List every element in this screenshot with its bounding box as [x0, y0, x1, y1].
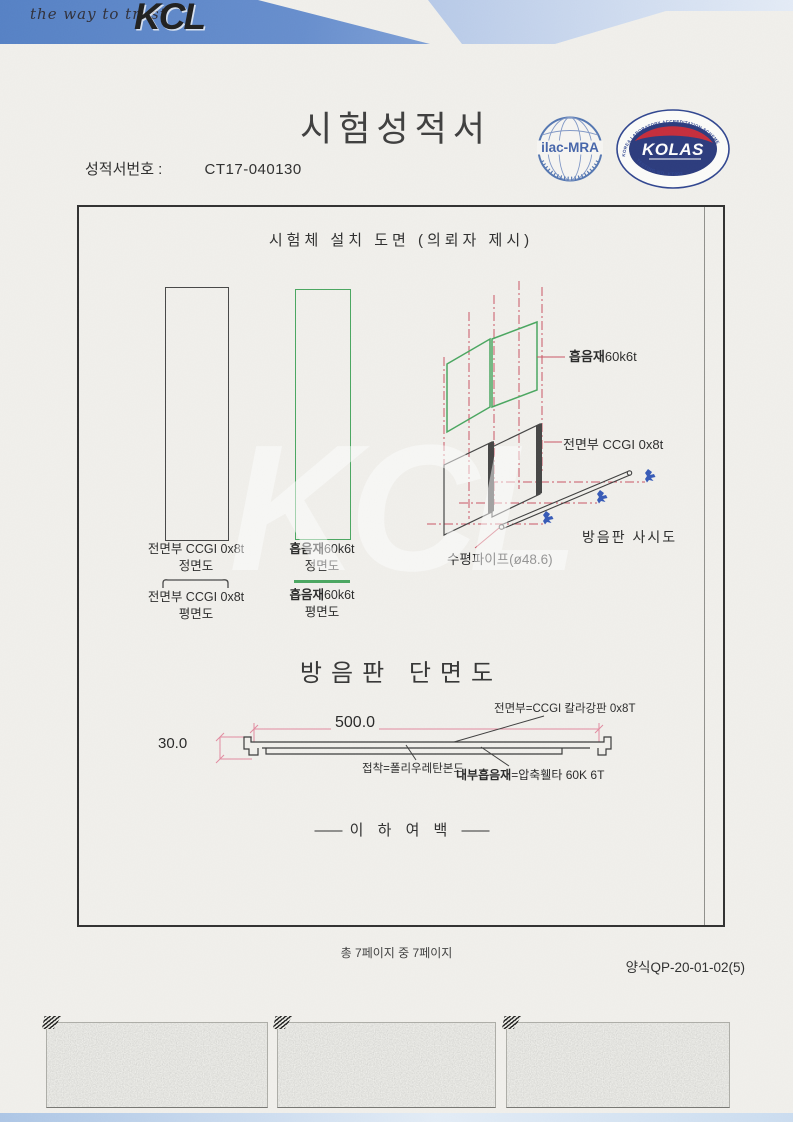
ilac-mra-logo: ilac-MRA [534, 114, 606, 184]
exploded-absorber-label: 흡음재60k6t [569, 346, 637, 365]
ilac-mra-text: ilac-MRA [541, 140, 599, 155]
plan-view-label: 평면도 [259, 604, 385, 621]
pipe-label: 수평파이프(ø48.6) [447, 548, 553, 568]
report-number-label: 성적서번호 : [85, 161, 162, 178]
iso-view-label: 방음판 사시도 [582, 527, 677, 547]
kolas-logo: KOREA LABORATORY ACCREDITATION SCHEME TE… [613, 108, 733, 190]
dimension-height: 30.0 [158, 735, 187, 752]
section-title: 방음판 단면도 [79, 653, 723, 688]
form-number: 양식QP-20-01-02(5) [626, 956, 745, 976]
end-of-content-note: ―― 이 하 여 백 ―― [79, 819, 723, 840]
front-panel-plan-shape [162, 576, 230, 589]
front-view-label: 정면도 [259, 558, 385, 575]
front-panel-spec: 전면부 CCGI 0x8t [116, 589, 276, 606]
kcl-logo: KCL [134, 0, 204, 38]
report-number-row: 성적서번호 : CT17-040130 [85, 158, 302, 179]
drawing-box: 시험체 설치 도면 (의뢰자 제시) 전면부 CCGI 0x8t 정면도 전면부… [77, 205, 725, 927]
front-panel-spec: 전면부 CCGI 0x8t [116, 541, 276, 558]
plan-view-label: 평면도 [116, 606, 276, 623]
accreditation-logos: ilac-MRA KOREA LABORATORY ACCREDITATION … [534, 108, 733, 190]
dimension-width: 500.0 [331, 714, 379, 732]
clamp-icon [645, 469, 656, 483]
absorber-spec: 흡음재60k6t [259, 587, 385, 604]
absorber-labels: 흡음재60k6t 정면도 흡음재60k6t 평면도 [259, 541, 385, 621]
absorber-panel-front-view [295, 289, 351, 540]
absorber-spec: 흡음재60k6t [259, 541, 385, 558]
security-texture-block [46, 1022, 268, 1108]
page-title: 시험성적서 [300, 101, 491, 152]
drawing-box-title: 시험체 설치 도면 (의뢰자 제시) [79, 229, 723, 250]
exploded-front-label: 전면부 CCGI 0x8t [563, 434, 663, 453]
security-texture-block [506, 1022, 730, 1108]
bottom-blue-strip [0, 1113, 793, 1122]
cross-section-drawing [154, 702, 714, 802]
front-panel-labels: 전면부 CCGI 0x8t 정면도 전면부 CCGI 0x8t 평면도 [116, 541, 276, 623]
clamp-icon [543, 511, 554, 525]
front-material-note: 전면부=CCGI 칼라강판 0x8T [494, 700, 635, 716]
absorber-plan-shape [294, 580, 350, 583]
front-panel-front-view [165, 287, 229, 541]
kolas-name: KOLAS [642, 140, 704, 159]
report-number-value: CT17-040130 [205, 161, 302, 178]
core-material-note: 내부흡음재=압축휄타 60K 6T [456, 766, 604, 783]
adhesive-note: 접착=폴리우레탄본드 [362, 760, 464, 776]
front-view-label: 정면도 [116, 558, 276, 575]
clamp-icon [597, 490, 608, 504]
security-texture-block [277, 1022, 496, 1108]
scanned-test-report-page: the way to trust KCL 시험성적서 성적서번호 : CT17-… [0, 0, 793, 1122]
